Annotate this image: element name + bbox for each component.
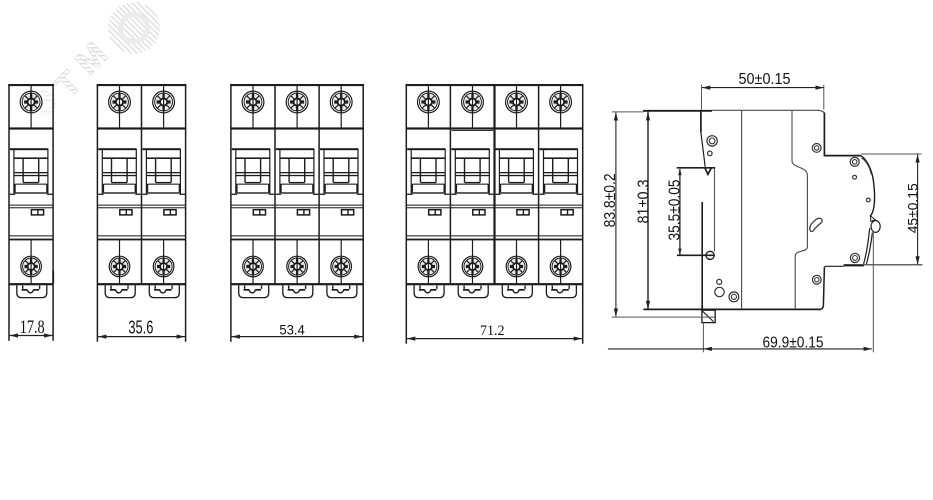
svg-text:35.5±0.05: 35.5±0.05 [667, 179, 684, 240]
svg-text:71.2: 71.2 [480, 323, 505, 339]
svg-text:53.4: 53.4 [279, 322, 305, 337]
svg-text:83.8±0.2: 83.8±0.2 [602, 173, 619, 227]
svg-text:45±0.15: 45±0.15 [904, 183, 920, 233]
svg-text:35.6: 35.6 [128, 317, 153, 338]
svg-text:69.9±0.15: 69.9±0.15 [763, 335, 824, 352]
svg-text:50±0.15: 50±0.15 [739, 71, 791, 88]
svg-text:17.8: 17.8 [20, 317, 45, 338]
svg-text:81±0.3: 81±0.3 [636, 179, 653, 223]
